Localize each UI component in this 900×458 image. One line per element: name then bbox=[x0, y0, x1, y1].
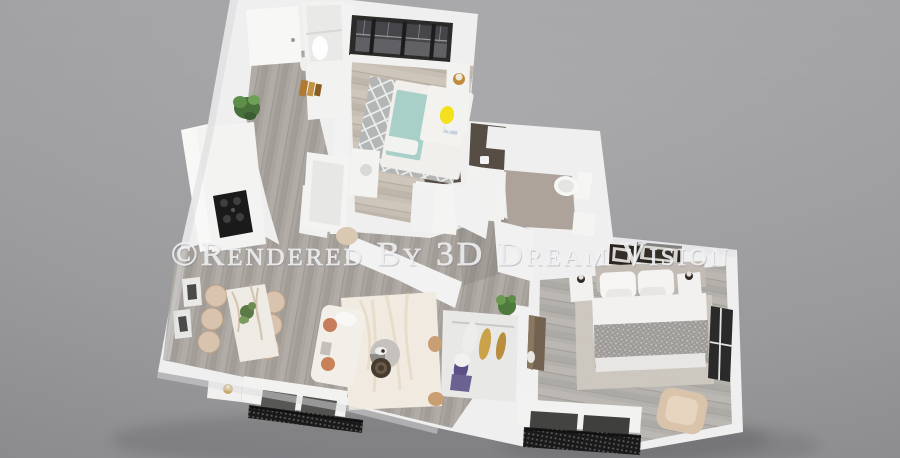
svg-text:©Rendered By 3D Dream Vision: ©Rendered By 3D Dream Vision bbox=[171, 236, 731, 273]
